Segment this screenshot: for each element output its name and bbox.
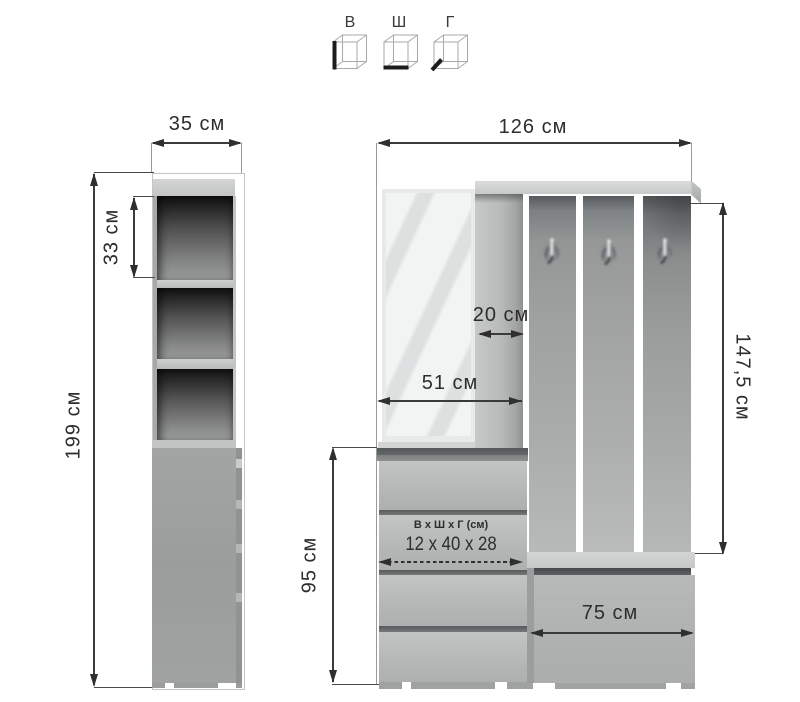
svg-text:В: В — [345, 14, 356, 31]
svg-text:Г: Г — [446, 14, 455, 31]
svg-text:Ш: Ш — [392, 14, 407, 31]
